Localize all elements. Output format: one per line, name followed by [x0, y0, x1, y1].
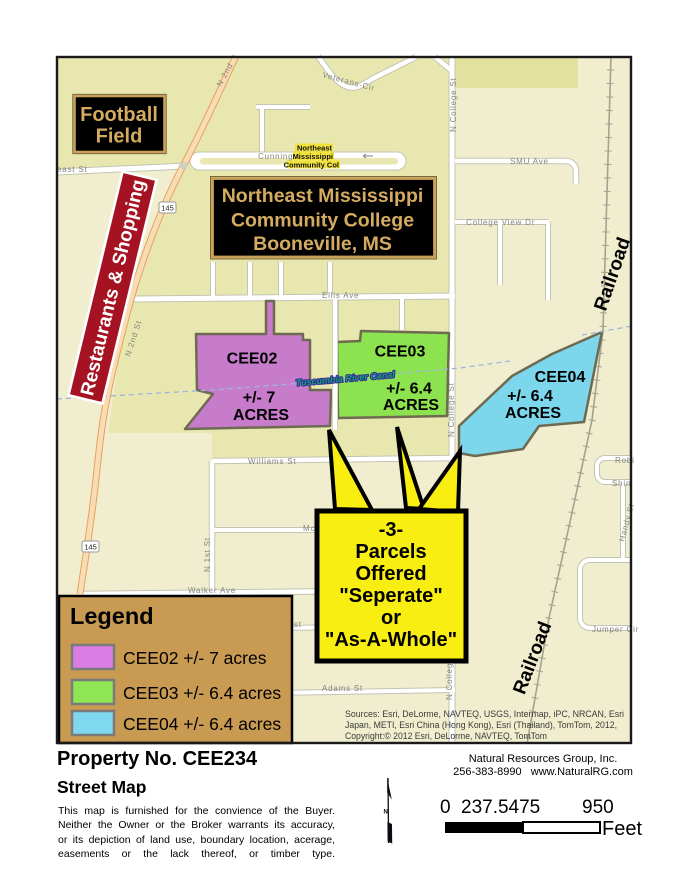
svg-text:+/- 6.4: +/- 6.4: [507, 388, 553, 405]
svg-text:+/- 7: +/- 7: [243, 390, 276, 407]
svg-text:237.5475: 237.5475: [461, 797, 540, 818]
svg-text:Adams St: Adams St: [322, 684, 363, 693]
svg-text:Walker Ave: Walker Ave: [188, 586, 236, 595]
svg-text:or: or: [381, 607, 401, 629]
svg-text:-3-: -3-: [379, 519, 403, 541]
svg-text:Legend: Legend: [70, 603, 154, 629]
svg-text:Parcels: Parcels: [355, 541, 426, 563]
svg-text:CEE02: CEE02: [227, 351, 278, 368]
svg-text:CEE04: CEE04: [535, 369, 586, 386]
svg-text:Feet: Feet: [602, 818, 642, 840]
svg-text:Community College: Community College: [231, 210, 414, 232]
svg-text:ACRES: ACRES: [233, 407, 289, 424]
svg-text:950: 950: [582, 797, 614, 818]
svg-text:Sources: Esri, DeLorme, NAVTEQ: Sources: Esri, DeLorme, NAVTEQ, USGS, In…: [345, 709, 624, 719]
svg-text:N: N: [384, 810, 388, 816]
svg-text:Japan, METI, Esri China (Hong: Japan, METI, Esri China (Hong Kong), Esr…: [345, 720, 617, 730]
svg-text:N College St: N College St: [449, 77, 458, 132]
svg-text:east St: east St: [57, 165, 88, 174]
svg-text:N College: N College: [445, 658, 454, 700]
svg-text:Offered: Offered: [355, 563, 426, 585]
svg-text:st: st: [294, 620, 302, 629]
svg-text:CEE02 +/- 7 acres: CEE02 +/- 7 acres: [123, 648, 267, 668]
svg-text:Football: Football: [80, 104, 158, 126]
svg-text:Copyright:© 2012 Esri, DeLorme: Copyright:© 2012 Esri, DeLorme, NAVTEQ, …: [345, 731, 547, 741]
svg-text:CEE03 +/- 6.4 acres: CEE03 +/- 6.4 acres: [123, 683, 281, 703]
svg-text:145: 145: [84, 543, 97, 552]
svg-text:Shin: Shin: [612, 479, 631, 488]
svg-text:0: 0: [440, 797, 451, 818]
svg-text:Booneville, MS: Booneville, MS: [253, 233, 392, 255]
svg-text:ACRES: ACRES: [505, 405, 561, 422]
svg-text:ACRES: ACRES: [383, 397, 439, 414]
svg-text:Community Col: Community Col: [284, 160, 339, 169]
svg-text:Williams St: Williams St: [248, 457, 296, 466]
svg-text:N 1st St: N 1st St: [203, 537, 212, 572]
svg-text:CEE03: CEE03: [375, 344, 426, 361]
svg-text:CEE04 +/- 6.4 acres: CEE04 +/- 6.4 acres: [123, 714, 281, 734]
svg-text:"As-A-Whole": "As-A-Whole": [325, 629, 457, 651]
svg-text:College View Dr: College View Dr: [466, 218, 535, 227]
svg-text:SMU Ave: SMU Ave: [510, 157, 549, 166]
svg-text:+/- 6.4: +/- 6.4: [386, 381, 432, 398]
svg-text:Mc: Mc: [303, 524, 315, 533]
svg-text:"Seperate": "Seperate": [339, 585, 442, 607]
svg-text:145: 145: [161, 204, 174, 213]
svg-text:Ellis Ave: Ellis Ave: [322, 291, 359, 300]
svg-text:Northeast Mississippi: Northeast Mississippi: [222, 185, 424, 207]
svg-text:Field: Field: [96, 126, 143, 148]
